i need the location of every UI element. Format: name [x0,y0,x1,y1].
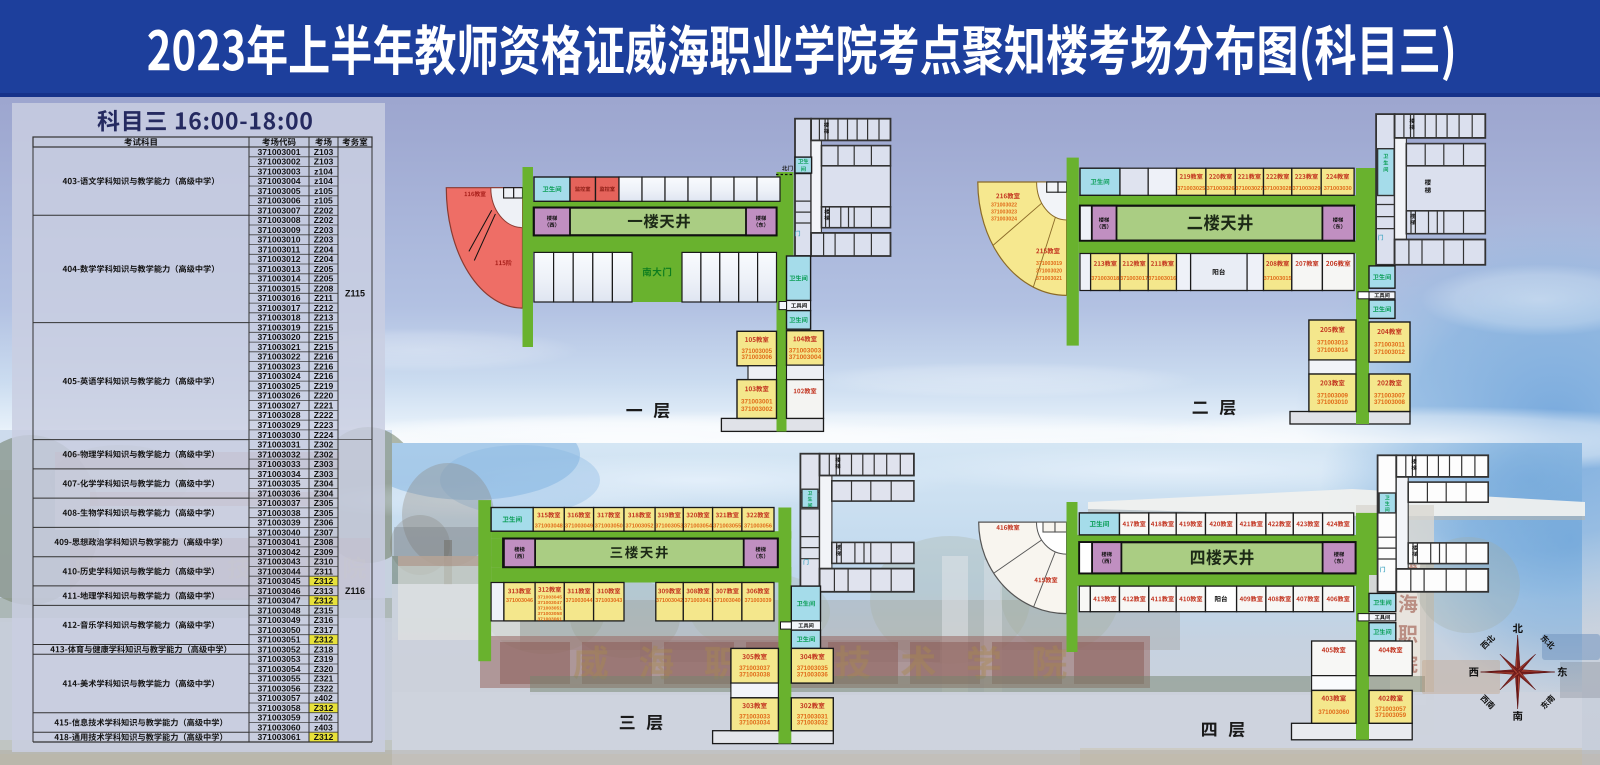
svg-text:371003015: 371003015 [257,283,300,293]
svg-text:Z203: Z203 [314,235,334,245]
svg-text:371003047: 371003047 [257,596,300,606]
svg-text:371003006: 371003006 [742,354,773,361]
svg-text:Z304: Z304 [314,479,334,489]
svg-text:371003043: 371003043 [595,598,622,604]
svg-text:371003009: 371003009 [257,225,300,235]
svg-text:Z305: Z305 [314,508,334,518]
svg-text:371003005: 371003005 [257,186,300,196]
svg-text:Z312: Z312 [314,703,334,713]
svg-text:371003016: 371003016 [257,293,300,303]
svg-text:371003007: 371003007 [257,205,300,215]
svg-text:Z204: Z204 [314,244,334,254]
svg-text:371003032: 371003032 [797,720,829,727]
svg-text:371003023: 371003023 [257,362,300,372]
svg-text:371003051: 371003051 [537,606,562,612]
svg-text:371003002: 371003002 [741,406,773,413]
svg-text:371003004: 371003004 [257,176,300,186]
svg-text:371003035: 371003035 [257,479,300,489]
svg-text:371003046: 371003046 [257,586,300,596]
svg-text:371003055: 371003055 [257,674,300,684]
svg-text:Z303: Z303 [314,459,334,469]
svg-text:Z202: Z202 [314,205,334,215]
svg-text:371003058: 371003058 [257,703,300,713]
svg-text:371003028: 371003028 [1264,186,1292,192]
svg-text:371003038: 371003038 [739,672,771,679]
svg-text:371003051: 371003051 [257,635,300,645]
svg-text:371003056: 371003056 [257,683,300,693]
svg-text:371003048: 371003048 [535,524,563,530]
svg-text:371003010: 371003010 [257,235,300,245]
svg-text:371003052: 371003052 [257,644,300,654]
svg-text:Z317: Z317 [314,625,334,635]
svg-text:371003053: 371003053 [257,654,300,664]
svg-text:371003042: 371003042 [257,547,300,557]
svg-text:Z211: Z211 [314,293,333,303]
svg-text:371003016: 371003016 [1148,276,1176,282]
svg-text:371003040: 371003040 [714,598,741,604]
svg-text:371003015: 371003015 [1264,276,1292,282]
svg-text:371003037: 371003037 [257,498,300,508]
svg-text:Z313: Z313 [314,586,334,596]
svg-text:Z305: Z305 [314,498,334,508]
svg-text:371003046: 371003046 [506,598,533,604]
svg-text:371003026: 371003026 [257,391,300,401]
svg-text:371003010: 371003010 [1317,399,1349,406]
svg-text:371003049: 371003049 [565,524,593,530]
svg-text:371003055: 371003055 [713,524,741,530]
svg-text:371003030: 371003030 [1324,186,1352,192]
svg-text:Z320: Z320 [314,664,334,674]
svg-text:371003011: 371003011 [258,244,301,254]
svg-text:371003027: 371003027 [257,401,300,411]
svg-text:371003041: 371003041 [685,598,712,604]
svg-text:371003032: 371003032 [257,449,300,459]
svg-text:371003022: 371003022 [257,352,300,362]
svg-text:z403: z403 [314,722,333,732]
svg-text:371003042: 371003042 [656,598,683,604]
svg-text:z105: z105 [314,196,333,206]
svg-text:Z308: Z308 [314,537,334,547]
svg-text:371003034: 371003034 [257,469,300,479]
svg-text:371003043: 371003043 [257,557,300,567]
svg-text:371003060: 371003060 [257,722,300,732]
svg-text:371003034: 371003034 [739,720,771,727]
svg-text:371003018: 371003018 [257,313,300,323]
svg-text:Z220: Z220 [314,391,334,401]
svg-text:371003044: 371003044 [257,566,300,576]
svg-text:z402: z402 [314,713,333,723]
svg-text:Z221: Z221 [314,401,334,411]
svg-text:371003020: 371003020 [1036,268,1062,274]
svg-text:371003036: 371003036 [797,672,829,679]
svg-text:371003019: 371003019 [257,323,300,333]
svg-text:Z208: Z208 [314,283,334,293]
svg-text:371003053: 371003053 [655,524,683,530]
svg-text:371003047: 371003047 [537,600,562,606]
svg-text:371003011: 371003011 [1374,342,1405,349]
svg-text:371003054: 371003054 [684,524,713,530]
svg-text:371003004: 371003004 [789,354,822,361]
svg-text:371003029: 371003029 [257,420,300,430]
svg-text:Z216: Z216 [314,362,334,372]
svg-text:Z312: Z312 [314,732,334,742]
svg-text:Z215: Z215 [314,323,334,333]
svg-text:371003020: 371003020 [257,332,300,342]
svg-text:Z215: Z215 [314,332,334,342]
svg-text:371003044: 371003044 [566,598,593,604]
svg-text:371003014: 371003014 [1317,347,1349,354]
svg-text:Z203: Z203 [314,225,334,235]
svg-text:Z302: Z302 [314,440,334,450]
svg-text:371003031: 371003031 [257,440,300,450]
svg-text:371003021: 371003021 [257,342,300,352]
svg-text:371003039: 371003039 [745,598,772,604]
svg-text:Z219: Z219 [314,381,334,391]
svg-text:371003025: 371003025 [257,381,300,391]
svg-text:371003056: 371003056 [744,524,772,530]
svg-text:371003050: 371003050 [257,625,300,635]
svg-text:Z205: Z205 [314,274,334,284]
svg-text:Z116: Z116 [345,586,365,596]
svg-text:Z322: Z322 [314,683,334,693]
svg-text:Z213: Z213 [314,313,334,323]
svg-text:Z212: Z212 [314,303,334,313]
svg-text:371003027: 371003027 [1235,186,1263,192]
svg-text:371003014: 371003014 [257,274,300,284]
svg-text:371003012: 371003012 [257,254,300,264]
svg-text:371003030: 371003030 [257,430,300,440]
svg-text:Z318: Z318 [314,644,334,654]
svg-text:z104: z104 [314,166,333,176]
svg-text:371003013: 371003013 [257,264,300,274]
svg-text:Z312: Z312 [314,576,334,586]
svg-text:371003045: 371003045 [257,576,300,586]
svg-text:371003041: 371003041 [257,537,300,547]
svg-text:371003017: 371003017 [1120,276,1148,282]
svg-text:Z311: Z311 [314,566,333,576]
svg-text:371003038: 371003038 [257,508,300,518]
svg-text:371003008: 371003008 [257,215,300,225]
svg-text:371003029: 371003029 [1293,186,1321,192]
svg-text:371003061: 371003061 [257,732,300,742]
svg-text:371003059: 371003059 [257,713,300,723]
svg-text:Z215: Z215 [314,342,334,352]
svg-text:Z312: Z312 [314,596,334,606]
svg-text:371003021: 371003021 [1036,276,1062,282]
svg-text:371003050: 371003050 [595,524,623,530]
svg-text:z104: z104 [314,176,333,186]
svg-text:371003026: 371003026 [1207,186,1235,192]
svg-text:Z115: Z115 [345,289,365,299]
svg-text:371003045: 371003045 [537,595,562,601]
svg-text:371003061: 371003061 [537,617,562,623]
svg-text:371003013: 371003013 [1317,340,1349,347]
svg-text:371003039: 371003039 [257,518,300,528]
svg-text:Z315: Z315 [314,605,334,615]
svg-text:Z304: Z304 [314,488,334,498]
svg-text:Z222: Z222 [314,410,334,420]
svg-text:371003025: 371003025 [1177,186,1205,192]
svg-text:371003036: 371003036 [257,488,300,498]
svg-text:371003024: 371003024 [257,371,300,381]
svg-text:Z312: Z312 [314,635,334,645]
svg-text:371003059: 371003059 [1375,712,1407,719]
svg-text:Z204: Z204 [314,254,334,264]
svg-text:Z223: Z223 [314,420,334,430]
svg-text:371003033: 371003033 [257,459,300,469]
svg-text:371003001: 371003001 [741,399,773,406]
svg-text:Z321: Z321 [314,674,334,684]
svg-text:Z310: Z310 [314,557,334,567]
svg-text:371003060: 371003060 [1318,709,1350,716]
svg-text:371003048: 371003048 [257,605,300,615]
svg-text:371003057: 371003057 [257,693,300,703]
svg-text:371003002: 371003002 [257,157,300,167]
svg-text:Z316: Z316 [314,615,334,625]
svg-text:z105: z105 [314,186,333,196]
svg-text:Z319: Z319 [314,654,334,664]
svg-text:371003019: 371003019 [1036,261,1062,267]
svg-text:371003012: 371003012 [1374,349,1406,356]
svg-text:Z103: Z103 [314,157,334,167]
svg-text:Z103: Z103 [314,147,334,157]
svg-text:Z216: Z216 [314,352,334,362]
svg-text:371003022: 371003022 [991,202,1017,208]
svg-text:z402: z402 [314,693,333,703]
svg-text:Z309: Z309 [314,547,334,557]
svg-text:Z307: Z307 [314,527,334,537]
svg-text:371003018: 371003018 [1091,276,1119,282]
svg-text:371003017: 371003017 [257,303,300,313]
svg-text:Z205: Z205 [314,264,334,274]
svg-text:371003052: 371003052 [626,524,654,530]
svg-text:Z202: Z202 [314,215,334,225]
svg-text:Z303: Z303 [314,469,334,479]
svg-text:371003028: 371003028 [257,410,300,420]
svg-text:371003040: 371003040 [257,527,300,537]
svg-text:Z302: Z302 [314,449,334,459]
svg-text:371003001: 371003001 [257,147,300,157]
svg-text:371003024: 371003024 [991,216,1017,222]
svg-text:371003003: 371003003 [257,166,300,176]
svg-text:371003054: 371003054 [257,664,300,674]
svg-text:371003049: 371003049 [257,615,300,625]
svg-text:371003008: 371003008 [1374,399,1406,406]
svg-text:Z306: Z306 [314,518,334,528]
svg-text:371003006: 371003006 [257,196,300,206]
svg-text:Z216: Z216 [314,371,334,381]
svg-text:Z224: Z224 [314,430,334,440]
svg-text:371003023: 371003023 [991,209,1017,215]
svg-text:371003058: 371003058 [537,611,562,617]
